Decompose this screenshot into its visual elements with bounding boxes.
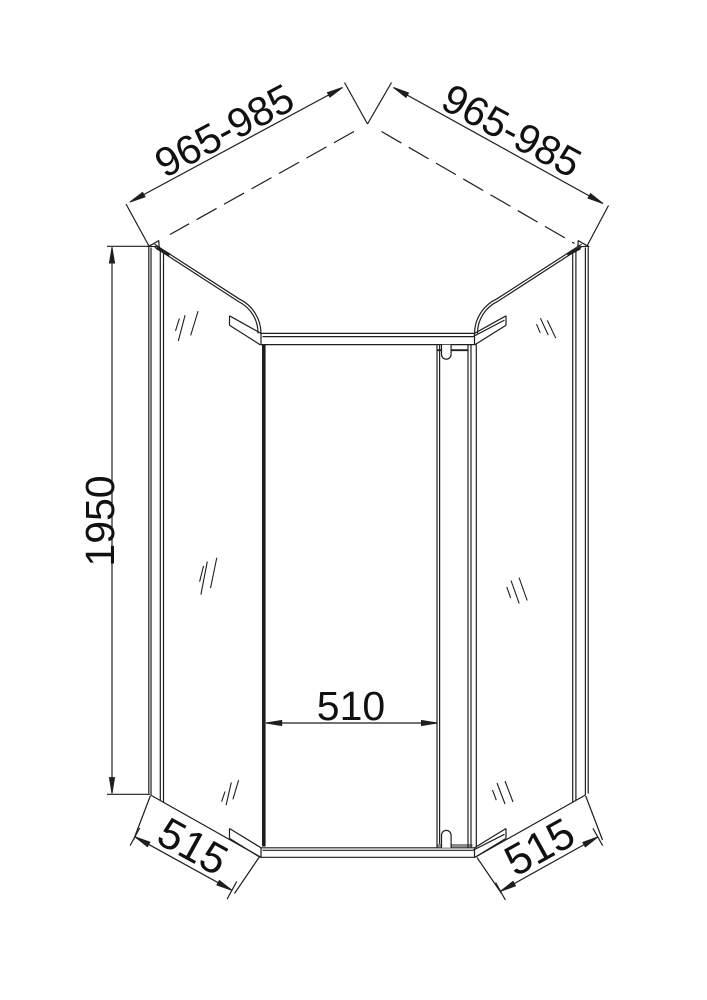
- svg-text:965-985: 965-985: [147, 75, 301, 187]
- svg-text:510: 510: [317, 683, 385, 729]
- svg-text:1950: 1950: [77, 475, 123, 566]
- svg-text:515: 515: [497, 809, 583, 886]
- svg-text:965-985: 965-985: [434, 75, 588, 187]
- svg-text:515: 515: [150, 809, 236, 886]
